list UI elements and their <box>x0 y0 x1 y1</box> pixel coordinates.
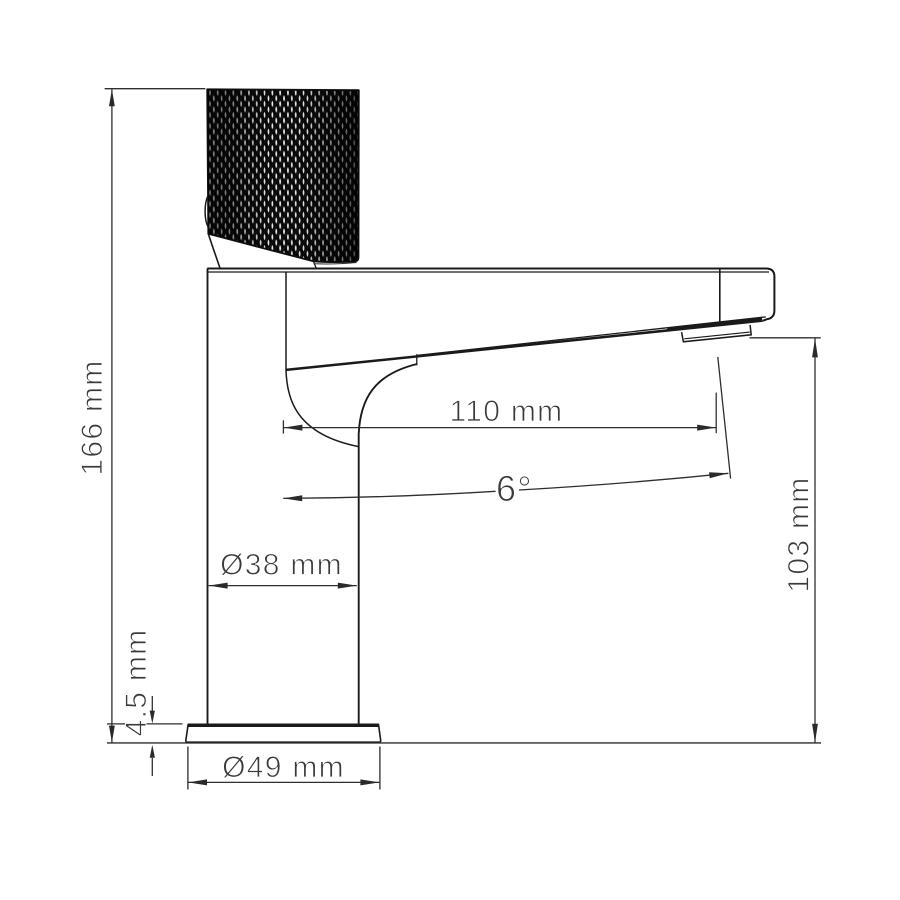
svg-text:4.5 mm: 4.5 mm <box>120 629 153 737</box>
svg-text:Ø38 mm: Ø38 mm <box>220 549 343 582</box>
svg-text:6°: 6° <box>496 468 533 509</box>
svg-text:110 mm: 110 mm <box>450 395 564 428</box>
svg-text:Ø49 mm: Ø49 mm <box>222 751 345 784</box>
svg-text:166 mm: 166 mm <box>76 359 109 475</box>
svg-text:103 mm: 103 mm <box>783 476 816 592</box>
